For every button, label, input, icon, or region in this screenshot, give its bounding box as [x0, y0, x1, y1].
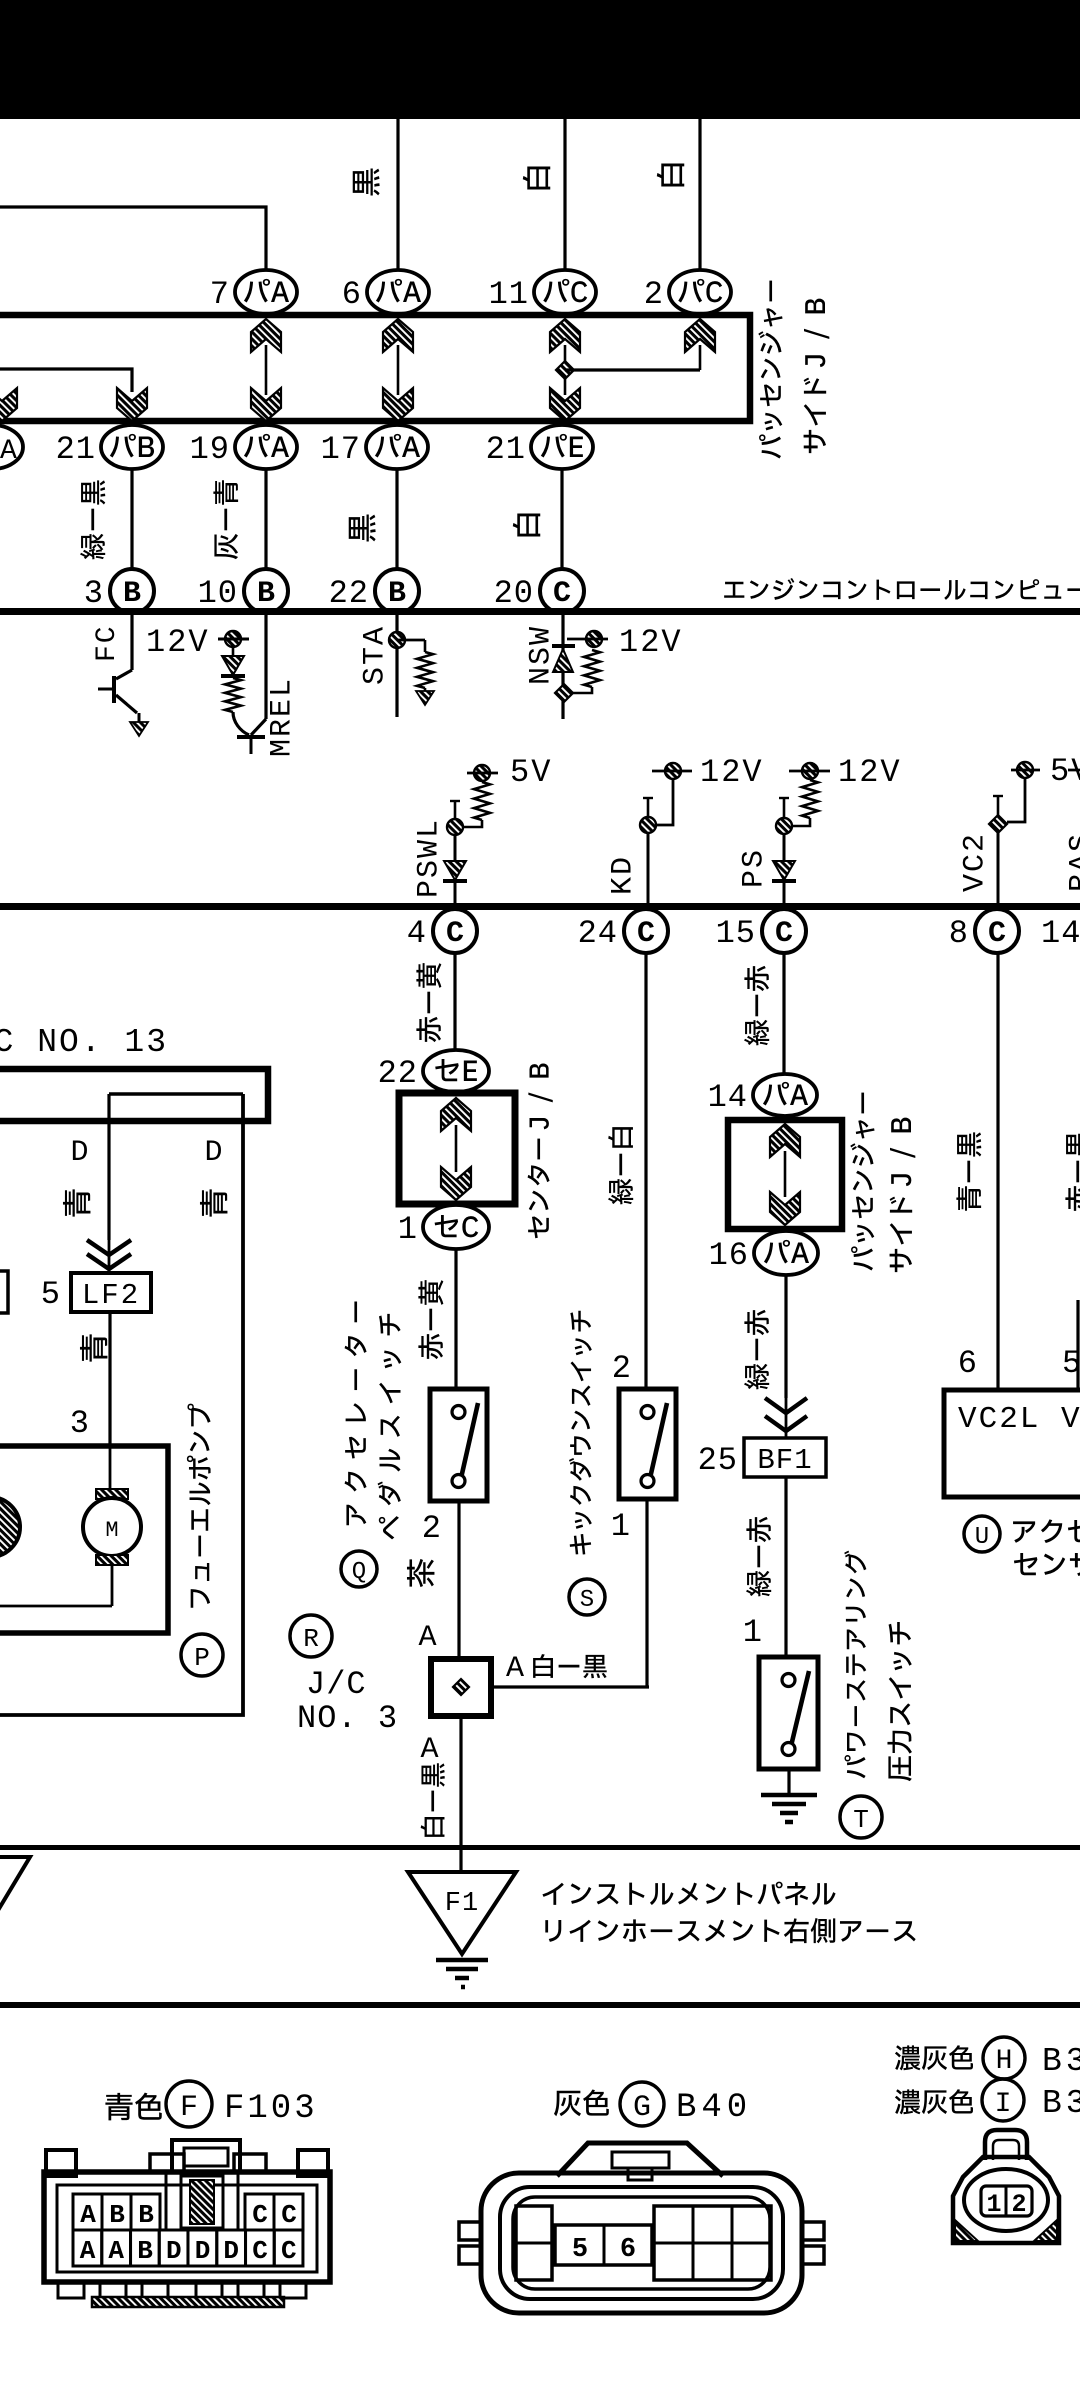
svg-text:3: 3: [70, 1405, 90, 1442]
svg-text:G: G: [633, 2091, 651, 2125]
svg-text:22: 22: [378, 1055, 418, 1092]
svg-text:12V: 12V: [146, 624, 210, 661]
svg-text:PSWL: PSWL: [413, 818, 447, 898]
svg-text:C: C: [988, 917, 1006, 951]
svg-text:VC2L V: VC2L V: [958, 1402, 1080, 1437]
svg-text:1: 1: [986, 2190, 1001, 2219]
svg-text:B3: B3: [1042, 2085, 1080, 2122]
svg-text:12V: 12V: [619, 624, 683, 661]
svg-text:C: C: [252, 2236, 268, 2266]
svg-text:C: C: [281, 2200, 297, 2230]
svg-text:22: 22: [329, 575, 369, 612]
svg-text:12V: 12V: [700, 754, 764, 791]
svg-text:6: 6: [620, 2235, 636, 2265]
svg-text:D: D: [204, 1136, 223, 1170]
svg-text:C: C: [553, 577, 571, 611]
svg-text:5: 5: [41, 1276, 61, 1313]
svg-text:BF1: BF1: [757, 1444, 812, 1477]
svg-text:R: R: [303, 1624, 319, 1654]
svg-text:C: C: [446, 917, 464, 951]
svg-text:21: 21: [486, 431, 526, 468]
svg-text:16: 16: [709, 1237, 749, 1274]
svg-text:C: C: [281, 2236, 297, 2266]
svg-text:C: C: [252, 2200, 268, 2230]
svg-text:B: B: [137, 2236, 153, 2266]
svg-text:19: 19: [190, 431, 230, 468]
svg-text:2: 2: [612, 1350, 632, 1387]
svg-text:1: 1: [611, 1508, 631, 1545]
svg-text:D: D: [195, 2236, 211, 2266]
svg-text:17: 17: [321, 431, 361, 468]
svg-text:12V: 12V: [838, 754, 902, 791]
svg-text:MREL: MREL: [266, 677, 300, 757]
svg-text:2: 2: [1011, 2190, 1026, 2219]
svg-text:B: B: [388, 577, 406, 611]
svg-text:4: 4: [407, 915, 427, 952]
svg-text:6: 6: [342, 276, 362, 313]
svg-text:F: F: [180, 2091, 198, 2125]
svg-text:NO. 3: NO. 3: [297, 1700, 398, 1737]
svg-text:S: S: [580, 1587, 594, 1614]
svg-text:A: A: [80, 2236, 96, 2266]
svg-text:10: 10: [198, 575, 238, 612]
svg-text:A: A: [80, 2200, 96, 2230]
svg-text:A: A: [0, 436, 17, 467]
svg-text:J/C: J/C: [306, 1666, 367, 1703]
svg-text:2: 2: [422, 1510, 442, 1547]
svg-text:STA: STA: [359, 625, 393, 685]
svg-text:11: 11: [489, 276, 529, 313]
svg-text:A: A: [420, 1733, 439, 1767]
svg-text:VC2: VC2: [959, 832, 993, 892]
svg-text:25: 25: [698, 1442, 738, 1479]
svg-text:3: 3: [84, 575, 104, 612]
svg-text:F1: F1: [445, 1889, 479, 1919]
svg-text:I: I: [995, 2089, 1012, 2120]
svg-text:5V: 5V: [510, 754, 552, 791]
svg-text:15: 15: [716, 915, 756, 952]
svg-text:NSW: NSW: [525, 625, 559, 685]
svg-text:8: 8: [949, 915, 969, 952]
svg-text:RAS: RAS: [1065, 832, 1080, 892]
svg-text:14: 14: [1041, 915, 1080, 952]
svg-text:H: H: [996, 2046, 1013, 2077]
svg-text:D: D: [223, 2236, 239, 2266]
svg-text:P: P: [194, 1643, 210, 1673]
svg-text:A: A: [418, 1621, 437, 1655]
svg-text:5V: 5V: [1050, 753, 1080, 790]
svg-text:U: U: [975, 1524, 989, 1551]
svg-text:14: 14: [708, 1079, 748, 1116]
svg-text:J/C NO. 13: J/C NO. 13: [0, 1024, 168, 1061]
svg-text:20: 20: [494, 575, 534, 612]
svg-text:1: 1: [398, 1211, 418, 1248]
svg-text:24: 24: [578, 915, 618, 952]
svg-text:5: 5: [572, 2235, 588, 2265]
svg-text:D: D: [70, 1136, 89, 1170]
svg-text:B: B: [138, 2200, 154, 2230]
svg-text:PS: PS: [738, 848, 772, 888]
svg-text:1: 1: [743, 1614, 763, 1651]
svg-text:B3: B3: [1042, 2043, 1080, 2080]
svg-text:C: C: [637, 917, 655, 951]
svg-text:B: B: [123, 577, 141, 611]
svg-text:B: B: [109, 2200, 125, 2230]
svg-text:2: 2: [644, 276, 664, 313]
svg-text:21: 21: [56, 431, 96, 468]
svg-text:C: C: [775, 917, 793, 951]
svg-text:LF2: LF2: [82, 1279, 140, 1312]
svg-text:A: A: [506, 1652, 525, 1686]
svg-text:Q: Q: [352, 1559, 366, 1586]
svg-text:B40: B40: [676, 2089, 752, 2127]
svg-text:A: A: [108, 2236, 124, 2266]
svg-text:F103: F103: [224, 2090, 318, 2128]
svg-text:B: B: [257, 577, 275, 611]
svg-text:KD: KD: [607, 855, 641, 895]
svg-text:D: D: [166, 2236, 182, 2266]
svg-text:M: M: [105, 1518, 118, 1543]
svg-text:6: 6: [958, 1345, 978, 1382]
svg-text:7: 7: [210, 276, 230, 313]
svg-text:FC: FC: [92, 624, 123, 662]
svg-text:T: T: [853, 1805, 869, 1835]
